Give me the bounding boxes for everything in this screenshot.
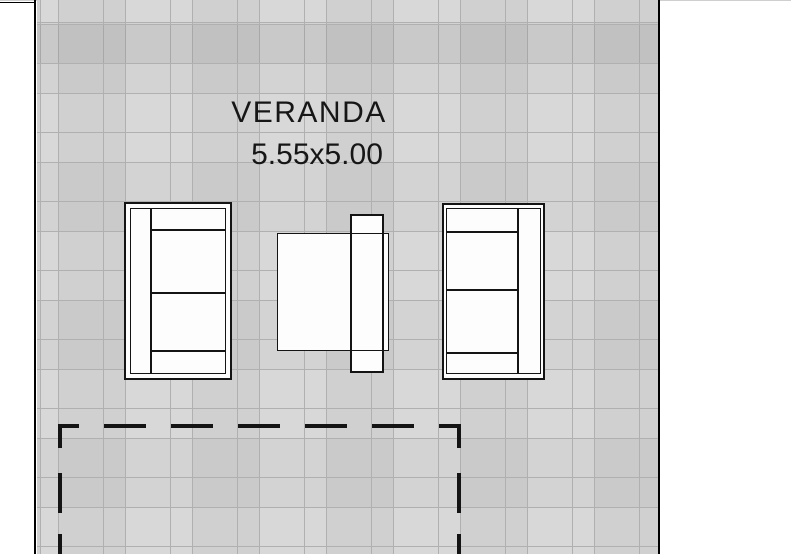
sofa-right-cushion-divider	[446, 289, 517, 291]
sofa-right	[442, 203, 545, 380]
boundary-dashed-line-left	[58, 428, 62, 554]
room-label: VERANDA	[229, 97, 389, 129]
wall-line-right	[658, 0, 660, 554]
boundary-dashed-line-top	[58, 424, 461, 428]
wall-line-left	[34, 0, 36, 554]
sofa-left-armrest-line-top	[150, 229, 226, 231]
side-table-outline	[350, 214, 384, 373]
sofa-right-armrest-line-bottom	[446, 352, 517, 354]
sofa-left-cushion-divider	[150, 292, 226, 294]
sofa-right-seat-frame	[446, 208, 541, 374]
sofa-right-armrest-line-top	[446, 231, 517, 233]
sofa-left	[124, 202, 232, 380]
wall-line-top-stub	[0, 2, 34, 3]
floor-plan-canvas: VERANDA 5.55x5.00	[0, 0, 791, 554]
tile-shade-band	[37, 25, 658, 63]
room-dimensions: 5.55x5.00	[248, 139, 386, 171]
sofa-right-backrest-line	[517, 208, 519, 374]
boundary-dashed-line-right	[457, 428, 461, 554]
sofa-left-armrest-line-bottom	[150, 350, 226, 352]
